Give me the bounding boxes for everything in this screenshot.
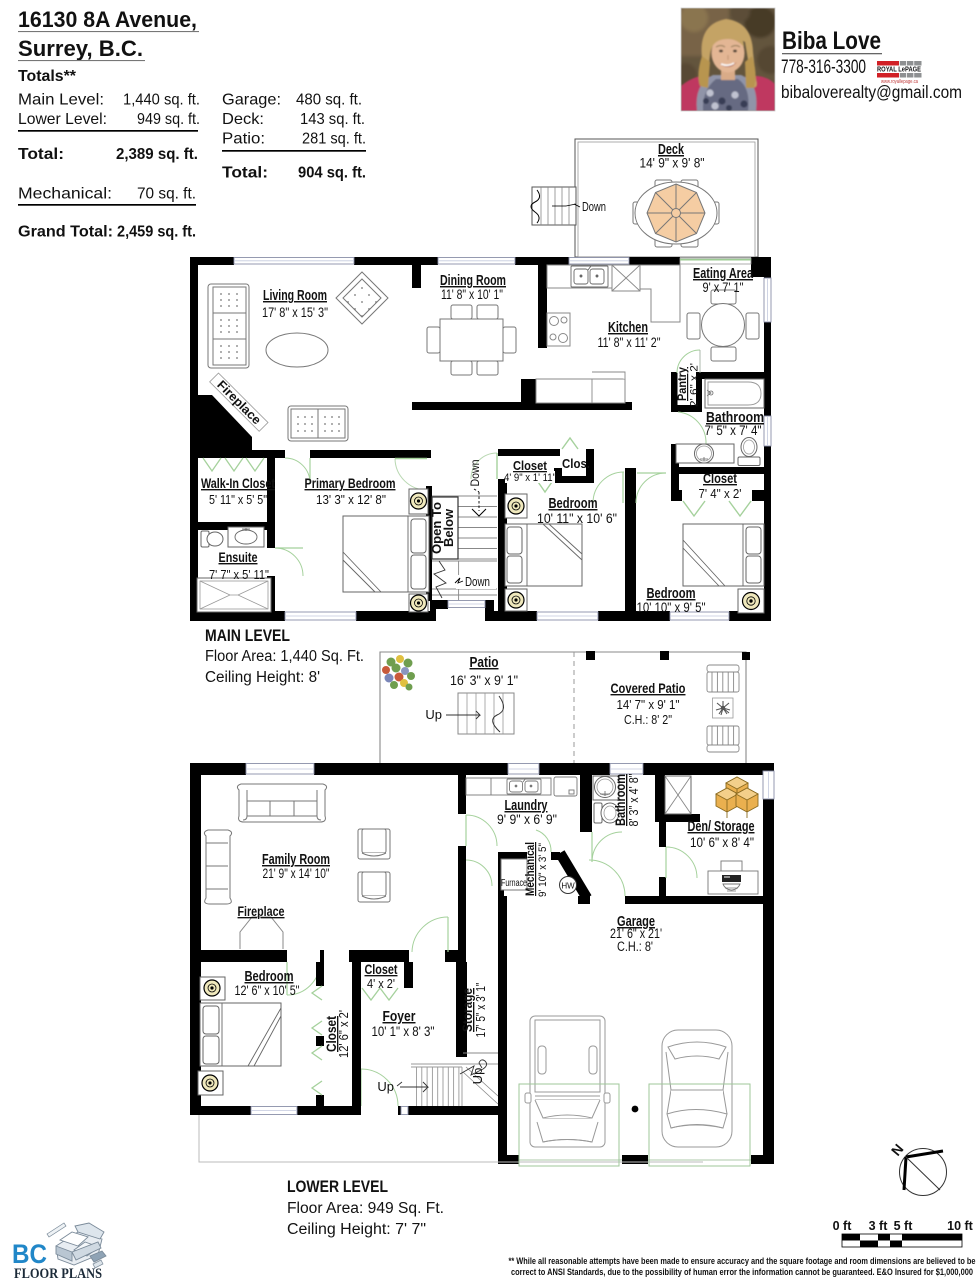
svg-text:Bedroom: Bedroom [549, 496, 598, 512]
svg-text:12' 6" x 10' 5": 12' 6" x 10' 5" [235, 983, 300, 998]
svg-text:BC: BC [12, 1239, 47, 1269]
svg-text:Garage:: Garage: [222, 92, 281, 109]
svg-text:14' 9" x 9' 8": 14' 9" x 9' 8" [640, 156, 705, 171]
svg-text:Down: Down [465, 574, 490, 589]
svg-text:Ensuite: Ensuite [219, 549, 258, 565]
svg-text:8' 3" x 4' 8": 8' 3" x 4' 8" [627, 774, 641, 827]
svg-text:4' x 2': 4' x 2' [367, 977, 395, 991]
svg-text:LOWER LEVEL: LOWER LEVEL [287, 1177, 388, 1196]
svg-text:0 ft: 0 ft [833, 1219, 853, 1233]
svg-text:778-316-3300: 778-316-3300 [781, 57, 866, 78]
svg-text:949 sq. ft.: 949 sq. ft. [137, 111, 200, 128]
svg-text:3 ft: 3 ft [869, 1219, 889, 1233]
svg-text:Total:: Total: [222, 165, 268, 182]
svg-text:Down: Down [582, 199, 606, 214]
svg-text:4' 9" x 1' 11": 4' 9" x 1' 11" [504, 472, 556, 484]
svg-text:bibaloverealty@gmail.com: bibaloverealty@gmail.com [781, 82, 962, 102]
svg-text:Floor Area: 949 Sq. Ft.: Floor Area: 949 Sq. Ft. [287, 1200, 444, 1217]
svg-text:5 ft: 5 ft [894, 1219, 914, 1233]
svg-text:Walk-In Closet: Walk-In Closet [201, 475, 275, 491]
svg-text:Patio: Patio [470, 655, 499, 671]
svg-text:10 ft: 10 ft [947, 1219, 974, 1233]
svg-text:10' 10" x 9' 5": 10' 10" x 9' 5" [637, 600, 706, 615]
svg-text:Grand Total:: Grand Total: [18, 224, 113, 241]
svg-text:Bathroom: Bathroom [613, 774, 628, 826]
svg-text:Below: Below [442, 509, 456, 547]
svg-text:Mechanical: Mechanical [523, 842, 537, 896]
svg-text:Deck:: Deck: [222, 111, 264, 128]
svg-text:16130 8A Avenue,: 16130 8A Avenue, [18, 7, 197, 32]
svg-text:17' 5" x 3' 1": 17' 5" x 3' 1" [474, 983, 488, 1038]
svg-text:Floor Area: 1,440 Sq. Ft.: Floor Area: 1,440 Sq. Ft. [205, 648, 364, 665]
svg-text:Patio:: Patio: [222, 131, 265, 148]
svg-text:7' 5" x 7' 4": 7' 5" x 7' 4" [705, 423, 762, 438]
svg-text:Closet: Closet [365, 962, 398, 977]
svg-text:FLOOR PLANS: FLOOR PLANS [14, 1266, 102, 1280]
svg-text:11' 8" x 10' 1": 11' 8" x 10' 1" [441, 287, 503, 302]
svg-text:Closet: Closet [703, 470, 737, 486]
svg-text:** While all reasonable attemp: ** While all reasonable attempts have be… [509, 1256, 976, 1266]
svg-text:Lower Level:: Lower Level: [18, 111, 107, 128]
svg-text:13' 3" x 12' 8": 13' 3" x 12' 8" [316, 492, 386, 507]
svg-text:Ceiling Height: 8': Ceiling Height: 8' [205, 669, 320, 686]
svg-text:9' x 7' 1": 9' x 7' 1" [703, 280, 744, 295]
svg-text:Main Level:: Main Level: [18, 92, 104, 109]
svg-text:Clos.: Clos. [562, 456, 590, 471]
svg-text:correct to ANSI Standards, due: correct to ANSI Standards, due to the po… [511, 1267, 973, 1277]
svg-text:9' 9" x 6' 9": 9' 9" x 6' 9" [497, 812, 557, 827]
svg-text:Primary Bedroom: Primary Bedroom [305, 475, 396, 491]
svg-text:Den/ Storage: Den/ Storage [688, 819, 755, 835]
svg-text:Mechanical:: Mechanical: [18, 186, 112, 203]
svg-text:480 sq. ft.: 480 sq. ft. [296, 92, 362, 109]
svg-text:Totals**: Totals** [18, 68, 77, 85]
svg-text:5' 11" x 5' 5": 5' 11" x 5' 5" [209, 492, 267, 507]
svg-text:7' 4" x 2': 7' 4" x 2' [699, 486, 742, 501]
svg-text:Down: Down [468, 460, 482, 487]
svg-text:Covered Patio: Covered Patio [611, 680, 686, 696]
svg-text:14' 7" x 9' 1": 14' 7" x 9' 1" [617, 697, 680, 712]
svg-text:Up: Up [377, 1079, 394, 1094]
svg-text:Surrey, B.C.: Surrey, B.C. [18, 36, 143, 61]
svg-text:9' 10" x 3' 5": 9' 10" x 3' 5" [537, 843, 549, 897]
svg-text:7' 7" x 5' 11": 7' 7" x 5' 11" [209, 567, 269, 582]
svg-text:C.H.: 8': C.H.: 8' [617, 939, 653, 954]
svg-text:Up: Up [425, 707, 442, 722]
svg-text:HW: HW [561, 882, 575, 891]
svg-text:281 sq. ft.: 281 sq. ft. [302, 131, 366, 148]
svg-text:17' 8" x 15' 3": 17' 8" x 15' 3" [262, 305, 328, 320]
svg-text:Foyer: Foyer [383, 1009, 416, 1025]
svg-text:2,389 sq. ft.: 2,389 sq. ft. [116, 146, 198, 163]
svg-text:Ceiling Height: 7' 7": Ceiling Height: 7' 7" [287, 1221, 426, 1238]
svg-text:Living Room: Living Room [263, 288, 327, 304]
svg-text:21' 9" x 14' 10": 21' 9" x 14' 10" [263, 866, 330, 881]
svg-text:Closet: Closet [513, 458, 548, 473]
svg-text:70 sq. ft.: 70 sq. ft. [137, 186, 196, 203]
svg-text:Biba Love: Biba Love [782, 27, 881, 55]
svg-text:10' 6" x 8' 4": 10' 6" x 8' 4" [690, 835, 754, 850]
svg-text:143 sq. ft.: 143 sq. ft. [300, 111, 365, 128]
svg-text:1,440 sq. ft.: 1,440 sq. ft. [123, 92, 200, 109]
svg-text:Kitchen: Kitchen [608, 320, 648, 336]
svg-text:12' 6" x 2': 12' 6" x 2' [337, 1010, 351, 1058]
svg-text:2' 6" x 2': 2' 6" x 2' [689, 363, 701, 407]
svg-text:Fireplace: Fireplace [238, 904, 285, 919]
svg-text:16' 3" x 9' 1": 16' 3" x 9' 1" [450, 673, 518, 688]
svg-text:MAIN LEVEL: MAIN LEVEL [205, 626, 290, 645]
svg-text:2,459 sq. ft.: 2,459 sq. ft. [117, 224, 196, 241]
svg-text:C.H.: 8' 2": C.H.: 8' 2" [624, 712, 672, 727]
svg-text:Pantry: Pantry [675, 367, 689, 401]
svg-text:ROYAL LePAGE: ROYAL LePAGE [877, 65, 921, 74]
svg-text:Storage: Storage [460, 988, 475, 1032]
svg-text:10' 1" x 8' 3": 10' 1" x 8' 3" [372, 1024, 435, 1039]
svg-text:11' 8" x 11' 2": 11' 8" x 11' 2" [598, 335, 661, 350]
svg-text:904 sq. ft.: 904 sq. ft. [298, 165, 366, 182]
svg-text:Total:: Total: [18, 146, 64, 163]
